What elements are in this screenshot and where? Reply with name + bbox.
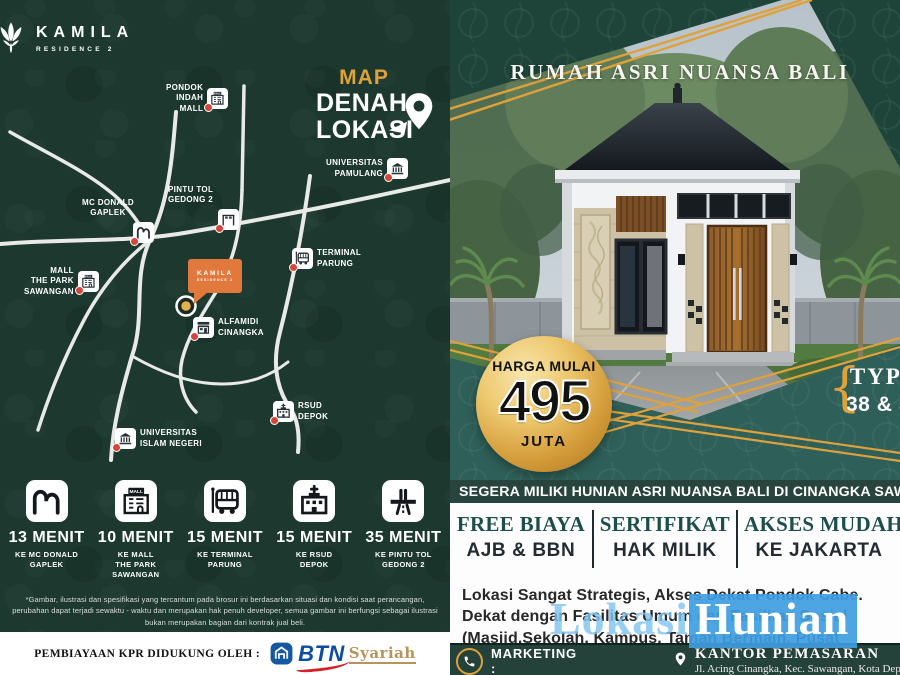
brand-subtitle: RESIDENCE 2 <box>36 46 134 53</box>
price-badge: HARGA MULAI 495 JUTA <box>476 336 612 472</box>
right-panel: KAMILA RESIDENCE 2 RUMAH ASRI NUANSA BAL… <box>450 0 900 675</box>
map-title-word1: MAP <box>316 66 412 90</box>
feature-sertifikat: SERTIFIKAT HAK MILIK <box>592 510 736 568</box>
type-label: { TYPE 38 & 56 <box>846 364 900 417</box>
phone-icon <box>456 648 483 675</box>
site-callout: KAMILA RESIDENCE 2 <box>188 259 242 293</box>
landmark-rsud-depok: RSUD DEPOK <box>273 401 328 422</box>
landmark-mall-the-park-sawangan: MALL THE PARK SAWANGAN <box>24 266 99 297</box>
location-pin-icon <box>398 90 440 137</box>
travel-time-item: 15 MENIT KE TERMINAL PARUNG <box>180 480 269 580</box>
landmark-universitas-islam-negeri: UNIVERSITAS ISLAM NEGERI <box>115 428 202 449</box>
landmark-terminal-parung: TERMINAL PARUNG <box>292 248 361 269</box>
left-panel: KAMILA RESIDENCE 2 MAP DENAH LOKASI <box>0 0 450 675</box>
travel-time-item: 13 MENIT KE MC DONALD GAPLEK <box>2 480 91 580</box>
office-info: KANTOR PEMASARAN Jl. Acing Cinangka, Kec… <box>695 647 900 675</box>
site-marker <box>180 300 192 312</box>
brand-logo-left: KAMILA RESIDENCE 2 <box>0 18 134 58</box>
btn-wordmark: BTN <box>298 641 345 667</box>
transom-windows <box>678 194 790 218</box>
price-suffix: JUTA <box>521 433 567 450</box>
site-marker-ring <box>177 297 196 316</box>
btn-swoosh <box>296 657 351 673</box>
flyer: KAMILA RESIDENCE 2 MAP DENAH LOKASI <box>0 0 900 675</box>
pin-icon <box>673 650 688 673</box>
landmark-universitas-pamulang: UNIVERSITAS PAMULANG <box>326 158 408 179</box>
landmark-mc-donald-gaplek: MC DONALD GAPLEK <box>82 198 134 243</box>
landmark-pondok-indah-mall: PONDOK INDAH MALL <box>166 83 228 114</box>
cta-bar: SEGERA MILIKI HUNIAN ASRI NUANSA BALI DI… <box>450 480 900 503</box>
hospital-icon <box>293 480 335 522</box>
mcdonalds-icon <box>133 222 154 243</box>
mcdonalds-icon <box>26 480 68 522</box>
door <box>708 226 766 352</box>
bus-icon <box>204 480 246 522</box>
highway-icon <box>382 480 424 522</box>
wood-header <box>616 196 666 232</box>
travel-time-item: 10 MENIT KE MALL THE PARK SAWANGAN <box>91 480 180 580</box>
btn-syariah-logo: BTN Syariah <box>269 641 416 667</box>
disclaimer-text: *Gambar, ilustrasi dan spesifikasi yang … <box>10 594 440 628</box>
callout-brand-subtitle: RESIDENCE 2 <box>197 278 234 282</box>
bus-icon <box>292 248 313 269</box>
price-value: 495 <box>499 374 590 429</box>
btn-emblem-icon <box>269 641 294 666</box>
leaf-icon <box>0 18 28 58</box>
financing-strip: PEMBIAYAAN KPR DIDUKUNG OLEH : BTN Syari… <box>0 632 450 675</box>
mall-icon <box>78 271 99 292</box>
brand-name: KAMILA <box>36 24 134 41</box>
travel-time-item: 35 MENIT KE PINTU TOL GEDONG 2 <box>359 480 448 580</box>
tagline: RUMAH ASRI NUANSA BALI <box>510 60 850 85</box>
callout-brand-name: KAMILA <box>197 270 233 277</box>
financing-label: PEMBIAYAAN KPR DIDUKUNG OLEH : <box>34 648 260 660</box>
university-icon <box>387 158 408 179</box>
marketing-label: MARKETING : <box>491 646 577 675</box>
travel-times-row: 13 MENIT KE MC DONALD GAPLEK 10 MENIT KE… <box>2 480 448 580</box>
hospital-icon <box>273 401 294 422</box>
watermark: LokasiHunian <box>550 594 857 648</box>
features-row: FREE BIAYA AJB & BBN SERTIFIKAT HAK MILI… <box>450 510 900 568</box>
landmark-alfamidi-cinangka: ALFAMIDI CINANGKA <box>193 317 264 338</box>
brace-glyph: { <box>828 362 861 414</box>
office-address: Jl. Acing Cinangka, Kec. Sawangan, Kota … <box>695 663 900 675</box>
window <box>616 240 666 333</box>
landmark-pintu-tol-gedong-2: PINTU TOL GEDONG 2 <box>168 185 213 230</box>
feature-free-biaya: FREE BIAYA AJB & BBN <box>450 510 592 568</box>
btn-syariah-wordmark: Syariah <box>349 644 416 664</box>
toll-gate-icon <box>218 209 239 230</box>
store-icon <box>193 317 214 338</box>
mall-icon <box>207 88 228 109</box>
office-name: KANTOR PEMASARAN <box>695 647 900 663</box>
mall-icon <box>115 480 157 522</box>
feature-akses: AKSES MUDAH KE JAKARTA <box>736 510 900 568</box>
travel-time-item: 15 MENIT KE RSUD DEPOK <box>270 480 359 580</box>
university-icon <box>115 428 136 449</box>
